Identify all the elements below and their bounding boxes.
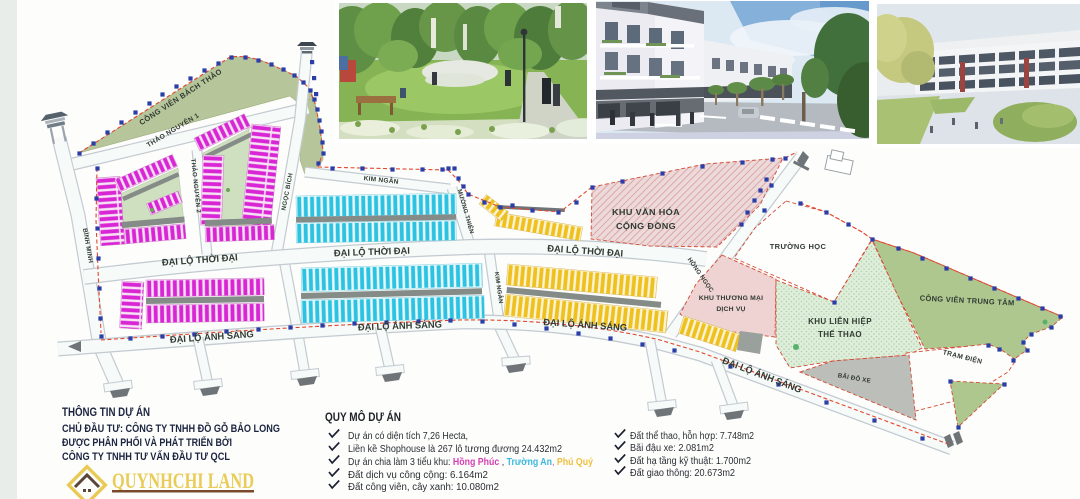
- svg-text:Đất hạ tầng kỹ thuật: 1.700m2: Đất hạ tầng kỹ thuật: 1.700m2: [630, 455, 751, 467]
- svg-text:Đất thể thao, hỗn hợp: 7.748m2: Đất thể thao, hỗn hợp: 7.748m2: [630, 429, 754, 442]
- svg-text:CHỦ ĐẦU TƯ: CÔNG TY TNHH ĐỒ GỖ: CHỦ ĐẦU TƯ: CÔNG TY TNHH ĐỒ GỖ BẢO LONG: [62, 422, 280, 435]
- svg-text:KHU LIÊN HIỆP: KHU LIÊN HIỆP: [808, 317, 872, 326]
- svg-text:QUYNHCHI LAND: QUYNHCHI LAND: [112, 468, 254, 493]
- svg-text:Bãi đậu xe: 2.081m2: Bãi đậu xe: 2.081m2: [630, 443, 714, 454]
- svg-text:Dự án có diện tích 7,26 Hecta,: Dự án có diện tích 7,26 Hecta,: [348, 431, 468, 442]
- svg-text:Đất công viên, cây xanh: 10.08: Đất công viên, cây xanh: 10.080m2: [348, 481, 499, 493]
- svg-text:TRƯỜNG HỌC: TRƯỜNG HỌC: [770, 242, 827, 251]
- svg-text:ĐƯỢC PHÂN PHỐI VÀ PHÁT TRIỂN B: ĐƯỢC PHÂN PHỐI VÀ PHÁT TRIỂN BỞI: [62, 435, 232, 449]
- svg-text:QUY MÔ DỰ ÁN: QUY MÔ DỰ ÁN: [325, 411, 401, 424]
- svg-text:Đất giao thông: 20.673m2: Đất giao thông: 20.673m2: [630, 467, 735, 479]
- svg-text:Dự án chia làm 3 tiểu khu: Hồn: Dự án chia làm 3 tiểu khu: Hồng Phúc , T…: [348, 456, 593, 468]
- svg-text:KHU VĂN HÓA: KHU VĂN HÓA: [612, 208, 680, 217]
- svg-text:Liền kề Shophouse là 267 lô tư: Liền kề Shophouse là 267 lô tương đương …: [348, 443, 562, 455]
- svg-text:KHU THƯƠNG MẠI: KHU THƯƠNG MẠI: [699, 295, 763, 302]
- svg-text:THÔNG TIN DỰ ÁN: THÔNG TIN DỰ ÁN: [62, 406, 150, 419]
- svg-text:Đất dịch vụ công cộng: 6.164m2: Đất dịch vụ công cộng: 6.164m2: [348, 469, 488, 481]
- svg-text:THỂ THAO: THỂ THAO: [818, 330, 862, 339]
- svg-text:DỊCH VỤ: DỊCH VỤ: [716, 306, 745, 313]
- svg-text:CỘNG ĐỒNG: CỘNG ĐỒNG: [616, 221, 676, 231]
- svg-text:CÔNG TY TNHH TƯ VẤN ĐẦU TƯ QCL: CÔNG TY TNHH TƯ VẤN ĐẦU TƯ QCL: [62, 450, 230, 463]
